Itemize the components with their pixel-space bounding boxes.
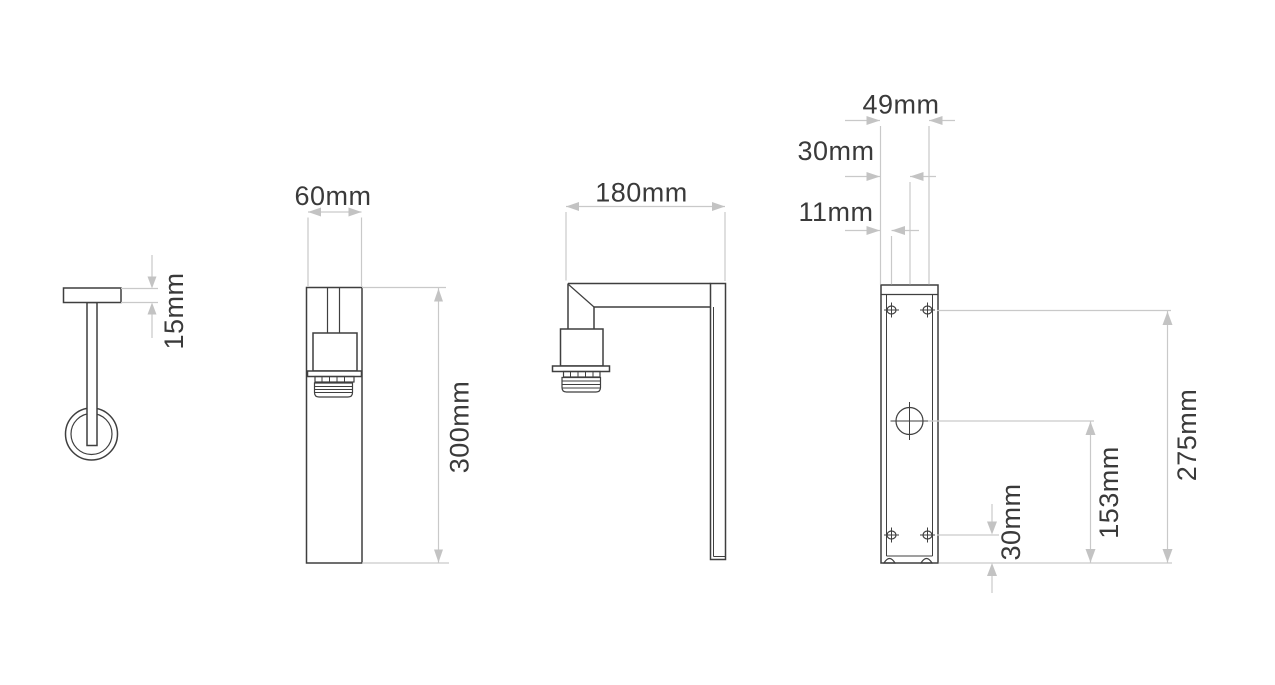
dim-300mm: 300mm [362,288,475,564]
dim-label-300mm: 300mm [445,381,475,474]
rear-view-drawing: 49mm 30mm 11mm 275mm [797,90,1202,594]
lamp-holder-thread [562,378,601,393]
dim-label-15mm: 15mm [159,272,189,349]
cable-entry-hole [891,402,929,440]
dim-label-30mm-bottom: 30mm [996,483,1026,560]
dim-49mm: 49mm [845,90,955,285]
backplate-side [711,284,726,560]
stem [87,303,97,446]
dim-153mm: 153mm [928,421,1124,563]
lamp-holder-flange [553,366,610,372]
dim-label-153mm: 153mm [1094,446,1124,539]
lamp-holder-ring [315,377,354,383]
dim-label-60mm: 60mm [294,181,371,211]
dim-60mm: 60mm [294,181,371,286]
dim-15mm: 15mm [121,255,189,350]
front-body [307,288,363,564]
dim-275mm: 275mm [937,311,1202,564]
dim-label-275mm: 275mm [1172,389,1202,482]
drawing-page: 15mm 60mm [0,0,1275,685]
dim-label-11mm: 11mm [798,197,873,227]
lamp-holder-body [561,329,604,366]
dim-label-180mm: 180mm [595,178,688,208]
dim-180mm: 180mm [566,178,725,282]
lamp-holder-flange [308,371,362,377]
front-view-drawing: 60mm 300mm [294,181,474,563]
lamp-holder-body [313,333,357,371]
side-view-drawing: 180mm [553,178,726,560]
top-view-drawing: 15mm [64,255,190,460]
dim-30mm-bottom: 30mm [937,483,1026,593]
technical-drawing: 15mm 60mm [0,0,1275,685]
dim-label-30mm-top: 30mm [797,136,874,166]
dim-label-49mm: 49mm [862,90,939,120]
head-bar [64,288,122,303]
lamp-holder-ring [564,372,601,378]
lamp-holder-thread [315,383,353,397]
dim-11mm: 11mm [798,197,919,285]
